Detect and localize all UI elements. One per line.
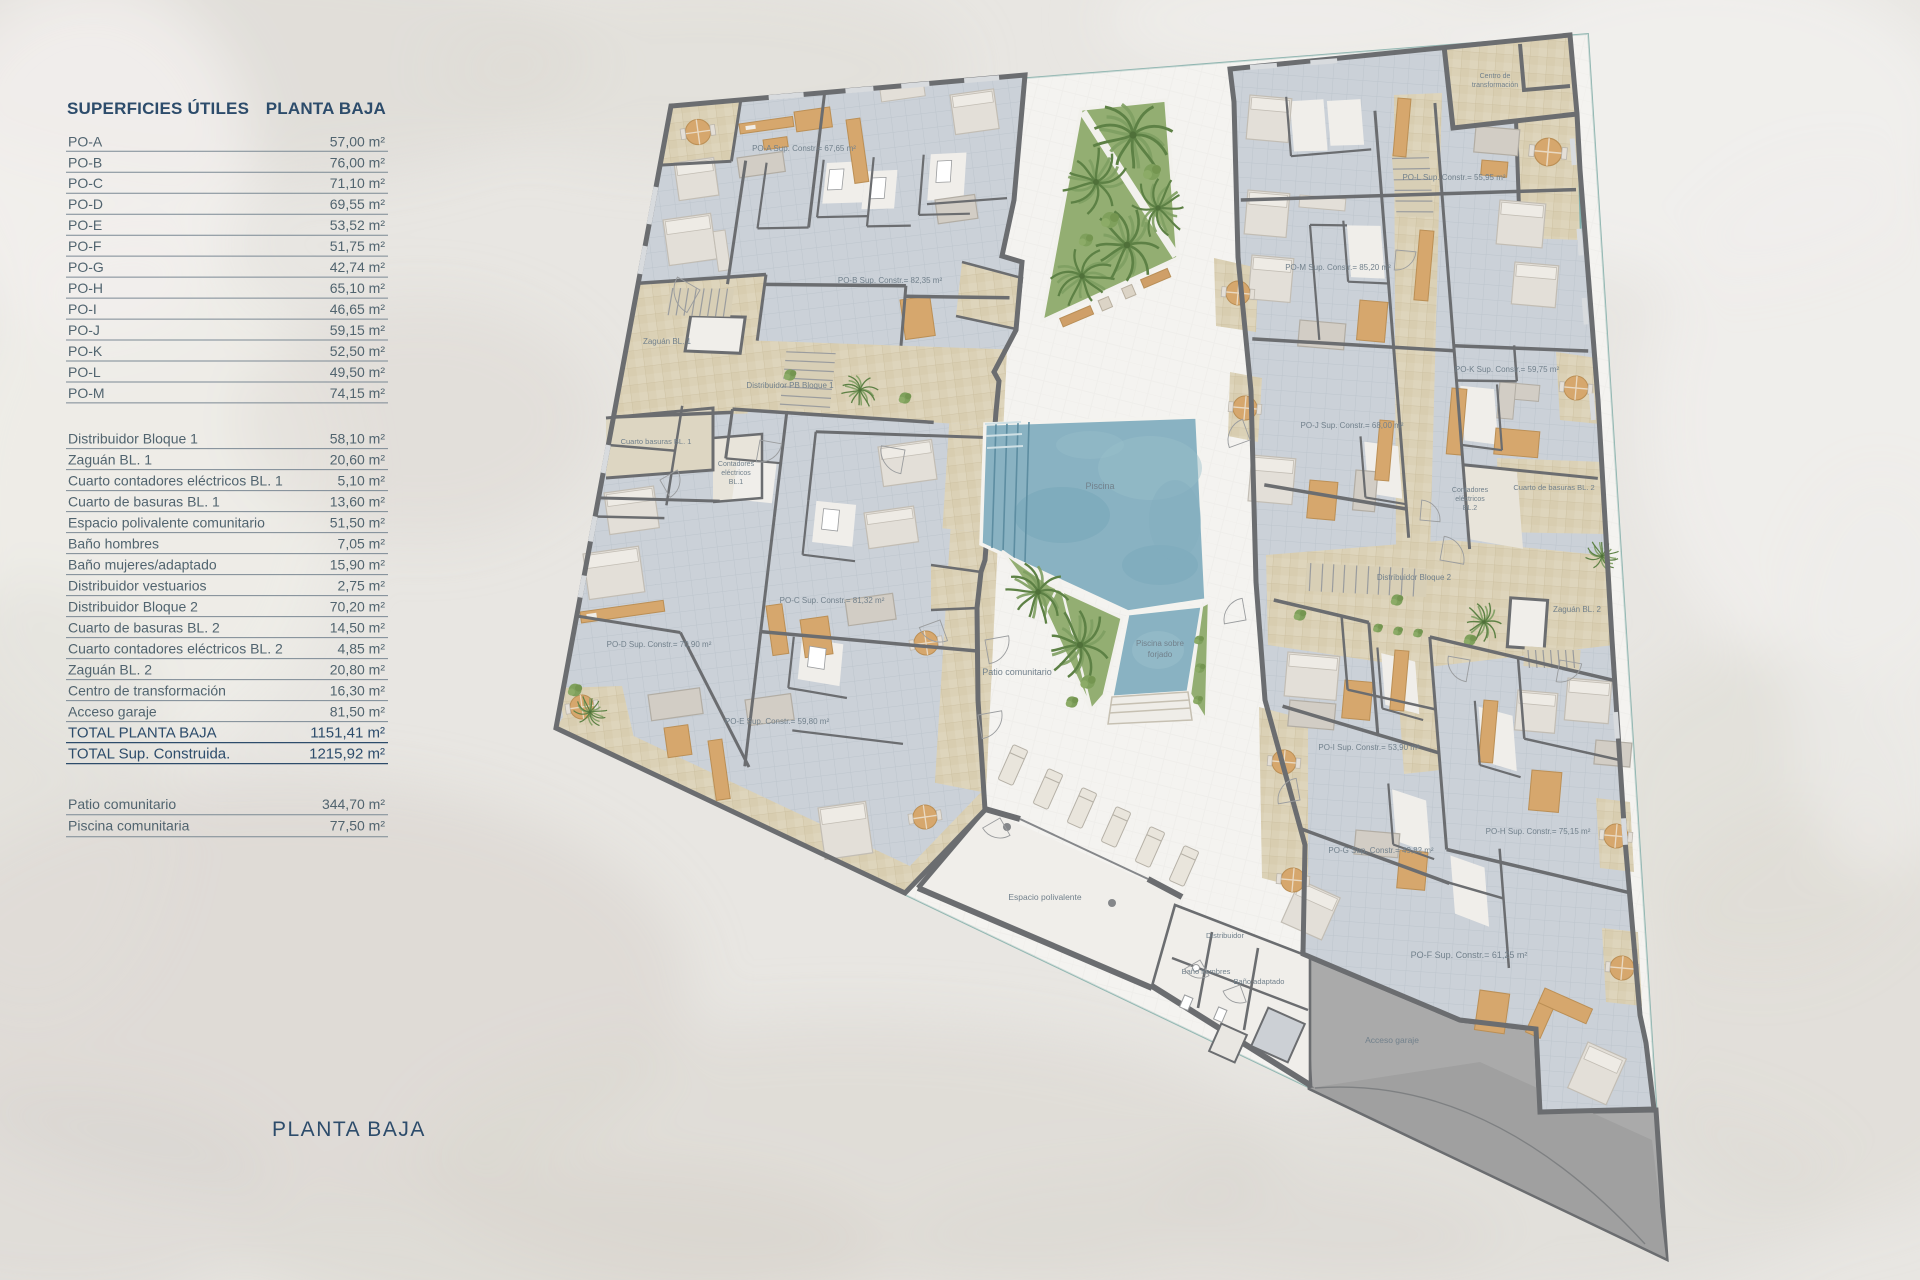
svg-text:BL.1: BL.1	[729, 479, 744, 486]
svg-text:PO-K: PO-K	[68, 343, 103, 359]
svg-text:Contadores: Contadores	[1452, 487, 1489, 494]
svg-text:PO-M: PO-M	[68, 385, 105, 401]
svg-text:PO-C Sup. Constr.= 81,32 m²: PO-C Sup. Constr.= 81,32 m²	[780, 596, 885, 605]
svg-text:PLANTA BAJA: PLANTA BAJA	[266, 99, 386, 118]
svg-text:15,90 m²: 15,90 m²	[330, 557, 386, 573]
svg-text:4,85 m²: 4,85 m²	[338, 641, 386, 657]
svg-text:TOTAL Sup. Construida.: TOTAL Sup. Construida.	[68, 746, 230, 763]
svg-text:Acceso garaje: Acceso garaje	[1365, 1035, 1419, 1045]
svg-text:PO-G Sup. Constr.= 49,82 m²: PO-G Sup. Constr.= 49,82 m²	[1328, 846, 1433, 855]
svg-text:Piscina comunitaria: Piscina comunitaria	[68, 818, 190, 834]
svg-text:PO-B: PO-B	[68, 154, 102, 170]
svg-text:Centro de: Centro de	[1480, 73, 1511, 80]
svg-text:65,10 m²: 65,10 m²	[330, 280, 386, 296]
svg-text:Cuarto de basuras BL. 1: Cuarto de basuras BL. 1	[68, 494, 220, 510]
svg-text:Zaguán BL. 1: Zaguán BL. 1	[68, 452, 152, 468]
svg-text:eléctricos: eléctricos	[1455, 496, 1485, 503]
svg-text:51,50 m²: 51,50 m²	[330, 515, 386, 531]
svg-text:1215,92 m²: 1215,92 m²	[309, 746, 385, 763]
svg-text:PO-H Sup. Constr.= 75,15 m²: PO-H Sup. Constr.= 75,15 m²	[1486, 827, 1591, 836]
svg-text:Zaguán BL. 2: Zaguán BL. 2	[1553, 605, 1602, 614]
svg-text:PO-J Sup. Constr.= 68,00 m²: PO-J Sup. Constr.= 68,00 m²	[1301, 421, 1404, 430]
svg-text:51,75 m²: 51,75 m²	[330, 238, 386, 254]
svg-text:forjado: forjado	[1148, 650, 1173, 659]
svg-text:52,50 m²: 52,50 m²	[330, 343, 386, 359]
svg-text:Baño adaptado: Baño adaptado	[1234, 977, 1285, 986]
svg-text:BL.2: BL.2	[1463, 505, 1478, 512]
svg-text:20,80 m²: 20,80 m²	[330, 662, 386, 678]
svg-text:5,10 m²: 5,10 m²	[338, 473, 386, 489]
svg-text:PO-E: PO-E	[68, 217, 102, 233]
svg-text:Distribuidor vestuarios: Distribuidor vestuarios	[68, 578, 207, 594]
svg-text:Distribuidor Bloque 2: Distribuidor Bloque 2	[68, 599, 198, 615]
svg-text:Zaguán BL. 1: Zaguán BL. 1	[643, 337, 692, 346]
svg-text:PO-D: PO-D	[68, 196, 103, 212]
svg-text:2,75 m²: 2,75 m²	[338, 578, 386, 594]
svg-text:PO-M Sup. Constr.= 85,20 m²: PO-M Sup. Constr.= 85,20 m²	[1285, 263, 1391, 272]
svg-text:PO-L: PO-L	[68, 364, 101, 380]
svg-text:PO-E Sup. Constr.= 59,80 m²: PO-E Sup. Constr.= 59,80 m²	[725, 717, 830, 726]
svg-text:PO-I: PO-I	[68, 301, 97, 317]
svg-text:13,60 m²: 13,60 m²	[330, 494, 386, 510]
svg-text:PO-F Sup. Constr.= 61,25 m²: PO-F Sup. Constr.= 61,25 m²	[1411, 950, 1528, 960]
svg-text:Cuarto de basuras BL. 2: Cuarto de basuras BL. 2	[68, 620, 220, 636]
svg-text:Cuarto contadores eléctricos B: Cuarto contadores eléctricos BL. 1	[68, 473, 283, 489]
svg-text:PO-D Sup. Constr.= 70,90 m²: PO-D Sup. Constr.= 70,90 m²	[607, 640, 712, 649]
svg-text:PO-G: PO-G	[68, 259, 104, 275]
svg-text:PO-I Sup. Constr.= 53,90 m²: PO-I Sup. Constr.= 53,90 m²	[1318, 743, 1419, 752]
svg-text:58,10 m²: 58,10 m²	[330, 431, 386, 447]
svg-text:Distribuidor Bloque 1: Distribuidor Bloque 1	[68, 431, 198, 447]
svg-text:16,30 m²: 16,30 m²	[330, 683, 386, 699]
svg-text:46,65 m²: 46,65 m²	[330, 301, 386, 317]
svg-text:59,15 m²: 59,15 m²	[330, 322, 386, 338]
svg-text:transformación: transformación	[1472, 82, 1518, 89]
svg-text:Distribuidor Bloque 2: Distribuidor Bloque 2	[1377, 573, 1452, 582]
svg-text:57,00 m²: 57,00 m²	[330, 133, 386, 149]
svg-text:Zaguán BL. 2: Zaguán BL. 2	[68, 662, 152, 678]
svg-text:PO-C: PO-C	[68, 175, 103, 191]
svg-text:eléctricos: eléctricos	[721, 470, 751, 477]
svg-text:Espacio polivalente: Espacio polivalente	[1008, 892, 1082, 902]
svg-text:Distribuidor: Distribuidor	[1206, 931, 1244, 940]
svg-text:53,52 m²: 53,52 m²	[330, 217, 386, 233]
svg-text:SUPERFICIES ÚTILES: SUPERFICIES ÚTILES	[67, 99, 249, 118]
svg-text:Baño hombres: Baño hombres	[68, 536, 159, 552]
svg-text:14,50 m²: 14,50 m²	[330, 620, 386, 636]
svg-text:69,55 m²: 69,55 m²	[330, 196, 386, 212]
svg-text:PO-F: PO-F	[68, 238, 101, 254]
svg-text:PO-J: PO-J	[68, 322, 100, 338]
svg-text:Cuarto contadores eléctricos B: Cuarto contadores eléctricos BL. 2	[68, 641, 283, 657]
svg-text:344,70 m²: 344,70 m²	[322, 796, 385, 812]
svg-text:Espacio polivalente comunitari: Espacio polivalente comunitario	[68, 515, 265, 531]
svg-text:76,00 m²: 76,00 m²	[330, 154, 386, 170]
svg-text:PLANTA BAJA: PLANTA BAJA	[272, 1118, 426, 1141]
svg-text:Patio comunitario: Patio comunitario	[982, 667, 1052, 677]
svg-text:PO-A Sup. Constr.= 67,65 m²: PO-A Sup. Constr.= 67,65 m²	[752, 144, 856, 153]
svg-text:20,60 m²: 20,60 m²	[330, 452, 386, 468]
svg-text:Distribuidor PB Bloque 1: Distribuidor PB Bloque 1	[746, 381, 834, 390]
svg-text:Centro de transformación: Centro de transformación	[68, 683, 226, 699]
svg-text:7,05 m²: 7,05 m²	[338, 536, 386, 552]
svg-text:TOTAL PLANTA BAJA: TOTAL PLANTA BAJA	[68, 725, 217, 742]
svg-text:PO-K Sup. Constr.= 59,75 m²: PO-K Sup. Constr.= 59,75 m²	[1455, 365, 1560, 374]
svg-text:Acceso garaje: Acceso garaje	[68, 704, 157, 720]
svg-text:Baño mujeres/adaptado: Baño mujeres/adaptado	[68, 557, 217, 573]
svg-text:74,15 m²: 74,15 m²	[330, 385, 386, 401]
svg-text:PO-H: PO-H	[68, 280, 103, 296]
svg-text:70,20 m²: 70,20 m²	[330, 599, 386, 615]
svg-text:81,50 m²: 81,50 m²	[330, 704, 386, 720]
svg-text:PO-B Sup. Constr.= 82,35 m²: PO-B Sup. Constr.= 82,35 m²	[838, 276, 943, 285]
svg-text:PO-L Sup. Constr.= 55,95 m²: PO-L Sup. Constr.= 55,95 m²	[1402, 173, 1505, 182]
svg-text:42,74 m²: 42,74 m²	[330, 259, 386, 275]
svg-text:Cuarto basuras BL. 1: Cuarto basuras BL. 1	[621, 437, 692, 446]
svg-text:71,10 m²: 71,10 m²	[330, 175, 386, 191]
svg-text:Patio comunitario: Patio comunitario	[68, 796, 176, 812]
svg-text:Piscina: Piscina	[1085, 481, 1114, 491]
svg-text:77,50 m²: 77,50 m²	[330, 818, 386, 834]
svg-text:Piscina sobre: Piscina sobre	[1136, 639, 1185, 648]
svg-text:49,50 m²: 49,50 m²	[330, 364, 386, 380]
svg-text:PO-A: PO-A	[68, 133, 103, 149]
svg-text:Cuarto de basuras BL. 2: Cuarto de basuras BL. 2	[1513, 483, 1594, 492]
svg-text:1151,41 m²: 1151,41 m²	[310, 725, 385, 742]
svg-text:Contadores: Contadores	[718, 461, 755, 468]
